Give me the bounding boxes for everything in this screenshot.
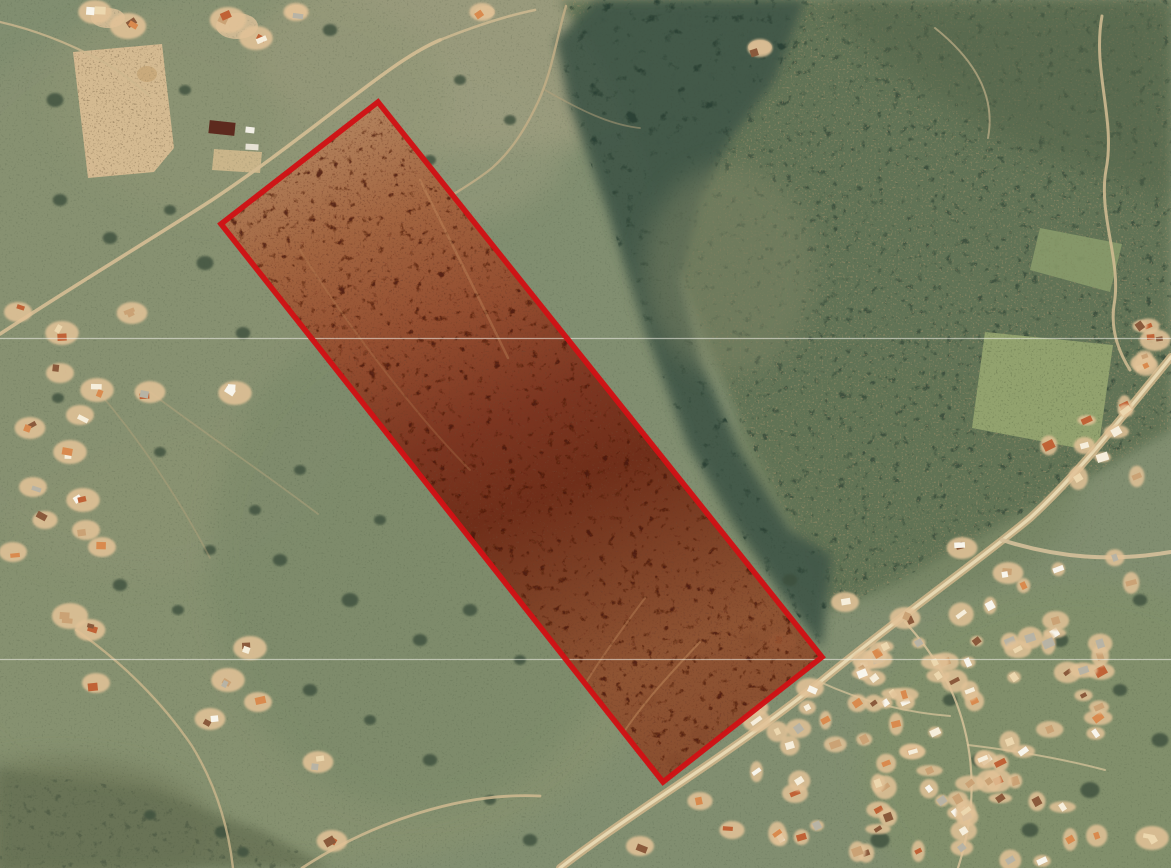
tree: [294, 465, 306, 475]
building: [723, 826, 733, 831]
building: [210, 715, 218, 722]
tree: [249, 505, 261, 515]
tree: [1152, 733, 1169, 747]
tree: [172, 605, 184, 615]
homestead-lot: [0, 542, 27, 562]
tree: [47, 93, 64, 107]
homestead-lot: [46, 363, 74, 383]
building: [52, 364, 59, 372]
tree: [113, 579, 127, 591]
tree: [1133, 594, 1147, 606]
satellite-imagery[interactable]: [0, 0, 1171, 868]
tree: [52, 393, 64, 403]
building: [91, 384, 102, 390]
tree: [523, 834, 537, 846]
tree: [342, 593, 359, 607]
homestead-lot: [239, 26, 273, 50]
tree: [423, 754, 437, 766]
building: [96, 542, 106, 550]
tree: [364, 715, 376, 725]
building: [77, 529, 86, 537]
tree: [413, 634, 427, 646]
building: [88, 683, 98, 692]
tree: [454, 75, 466, 85]
tree: [154, 447, 166, 457]
building: [245, 144, 258, 151]
tree: [323, 24, 337, 36]
tree: [144, 810, 156, 820]
tree: [53, 194, 67, 206]
tree: [236, 327, 250, 339]
building: [95, 6, 106, 14]
homestead-lot: [303, 751, 334, 773]
building: [86, 7, 95, 15]
tree: [197, 256, 214, 270]
tree: [103, 232, 117, 244]
building: [57, 333, 67, 341]
building: [1001, 571, 1008, 578]
homestead-lot: [135, 381, 166, 403]
satellite-map-view[interactable]: [0, 0, 1171, 868]
building: [954, 542, 965, 548]
tree: [504, 115, 516, 125]
building: [316, 755, 325, 761]
tree: [1022, 823, 1039, 837]
tree: [870, 832, 889, 848]
building: [245, 127, 255, 134]
tree: [1080, 782, 1099, 798]
building: [311, 763, 319, 770]
tree: [463, 604, 477, 616]
tree: [237, 847, 249, 857]
building: [59, 612, 69, 620]
tree: [273, 554, 287, 566]
homestead-lot: [80, 378, 114, 402]
tree: [374, 515, 386, 525]
tree: [1113, 684, 1127, 696]
tree: [783, 574, 797, 586]
homestead-lot: [195, 708, 226, 730]
tree: [164, 205, 176, 215]
homestead-lot: [45, 321, 79, 345]
tree: [179, 85, 191, 95]
building: [208, 120, 235, 136]
tree: [303, 684, 317, 696]
homestead-lot: [72, 520, 100, 540]
